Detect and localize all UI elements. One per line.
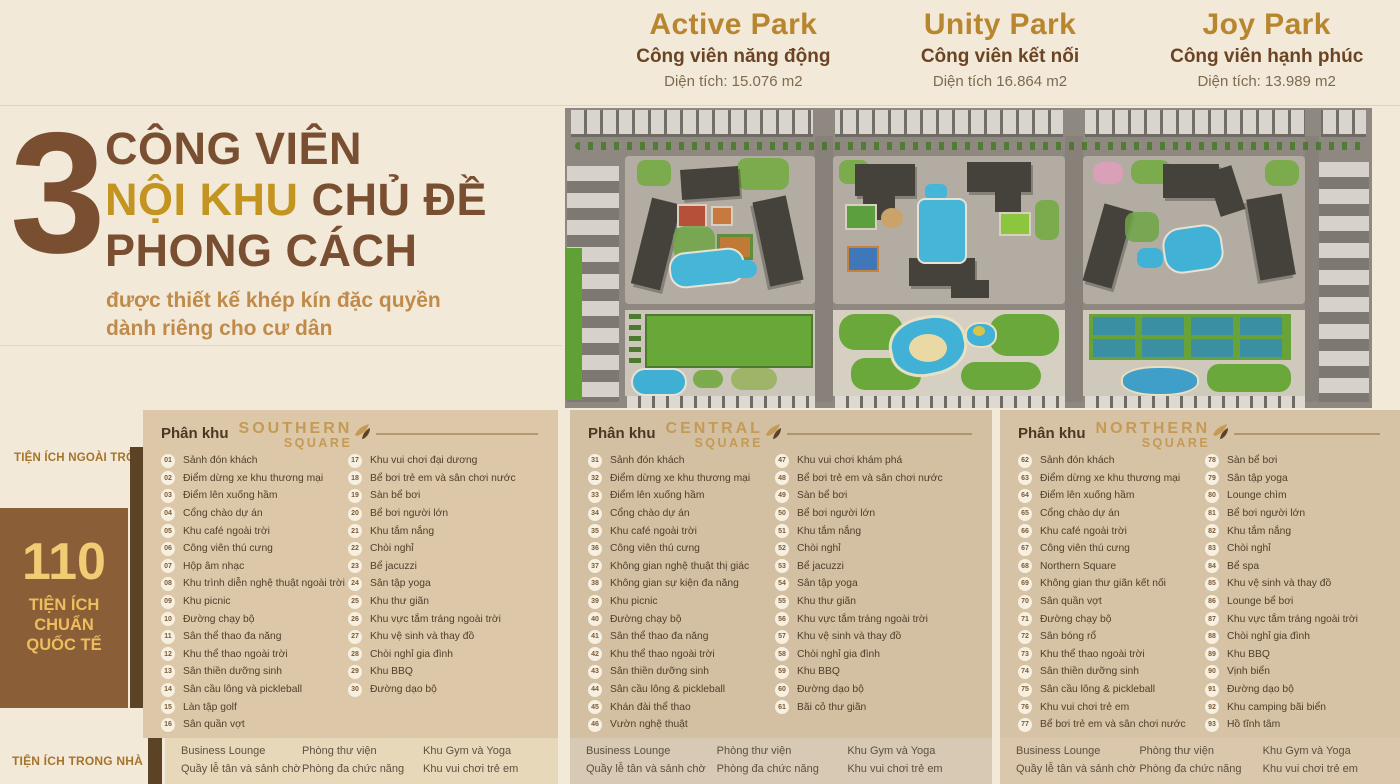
- item-label: Đường chạy bộ: [610, 614, 681, 625]
- list-item: 68Northern Square: [1018, 558, 1205, 576]
- item-number-badge: 33: [588, 489, 602, 503]
- item-number-badge: 71: [1018, 612, 1032, 626]
- list-item: 11Sân thể thao đa năng: [161, 628, 348, 646]
- item-label: Làn tập golf: [183, 702, 237, 713]
- list-item: 12Khu thể thao ngoài trời: [161, 646, 348, 664]
- indoor-item: Phòng thư viện: [302, 743, 423, 761]
- map-shape: [629, 314, 641, 364]
- item-number-badge: 39: [588, 595, 602, 609]
- item-label: Lounge chìm: [1227, 490, 1287, 501]
- item-label: Khu vệ sinh và thay đồ: [1227, 578, 1331, 589]
- list-item: 74Sân thiền dưỡng sinh: [1018, 663, 1205, 681]
- list-item: 73Khu thể thao ngoài trời: [1018, 646, 1205, 664]
- indoor-group-southern: Business LoungeQuầy lễ tân và sảnh chờPh…: [165, 738, 558, 784]
- map-shape: [693, 370, 723, 388]
- item-number-badge: 67: [1018, 542, 1032, 556]
- amenity-column-2: 47Khu vui chơi khám phá48Bể bơi trẻ em v…: [775, 452, 992, 734]
- item-label: Đường dạo bộ: [797, 684, 864, 695]
- item-label: Bãi cỏ thư giãn: [797, 702, 866, 713]
- item-number-badge: 82: [1205, 524, 1219, 538]
- item-number-badge: 12: [161, 647, 175, 661]
- list-item: 14Sân cầu lông và pickleball: [161, 681, 348, 699]
- map-shape: [815, 136, 833, 402]
- item-label: Chòi nghỉ gia đình: [797, 649, 880, 660]
- item-number-badge: 79: [1205, 471, 1219, 485]
- item-label: Khu vệ sinh và thay đồ: [370, 631, 474, 642]
- indoor-item: Phòng đa chức năng: [1139, 761, 1262, 779]
- indoor-group-northern: Business LoungeQuầy lễ tân và sảnh chờPh…: [1000, 738, 1400, 784]
- item-number-badge: 20: [348, 507, 362, 521]
- item-label: Khán đài thể thao: [610, 702, 691, 713]
- list-item: 51Khu tắm nắng: [775, 522, 992, 540]
- map-shape: [1093, 317, 1287, 335]
- item-label: Bể bơi trẻ em và sân chơi nước: [797, 473, 943, 484]
- list-item: 93Hồ tĩnh tâm: [1205, 716, 1400, 734]
- list-item: 76Khu vui chơi trẻ em: [1018, 698, 1205, 716]
- list-item: 60Đường dạo bộ: [775, 681, 992, 699]
- map-shape: [737, 158, 789, 190]
- list-item: 45Khán đài thể thao: [588, 698, 775, 716]
- park-name: Active Park: [600, 8, 867, 41]
- amenity-column-1: 62Sảnh đón khách63Điểm dừng xe khu thươn…: [1018, 452, 1205, 734]
- item-number-badge: 93: [1205, 718, 1219, 732]
- list-item: 83Chòi nghỉ: [1205, 540, 1400, 558]
- item-number-badge: 24: [348, 577, 362, 591]
- item-label: Lounge bể bơi: [1227, 596, 1293, 607]
- indoor-item: Quầy lễ tân và sảnh chờ: [181, 761, 302, 779]
- item-label: Sân quần vợt: [1040, 596, 1102, 607]
- item-label: Khu thể thao ngoài trời: [610, 649, 715, 660]
- item-number-badge: 48: [775, 471, 789, 485]
- list-item: 18Bể bơi trẻ em và sân chơi nước: [348, 470, 558, 488]
- item-number-badge: 01: [161, 454, 175, 468]
- list-item: 28Chòi nghỉ gia đình: [348, 646, 558, 664]
- section-label: Phân khu: [588, 425, 656, 442]
- list-item: 52Chòi nghỉ: [775, 540, 992, 558]
- item-label: Khu vui chơi khám phá: [797, 455, 902, 466]
- section-header: Phân khuSOUTHERNSQUARE: [143, 410, 558, 450]
- map-shape: [989, 314, 1059, 356]
- item-label: Khu BBQ: [797, 666, 840, 677]
- amenity-column-2: 17Khu vui chơi đại dương18Bể bơi trẻ em …: [348, 452, 558, 734]
- map-shape: [1121, 366, 1199, 396]
- list-item: 13Sân thiền dưỡng sinh: [161, 663, 348, 681]
- item-number-badge: 41: [588, 630, 602, 644]
- list-item: 56Khu vực tắm tráng ngoài trời: [775, 610, 992, 628]
- item-number-badge: 11: [161, 630, 175, 644]
- map-shape: [1093, 339, 1287, 357]
- item-number-badge: 15: [161, 700, 175, 714]
- indoor-column-3: Khu Gym và YogaKhu vui chơi trẻ em: [423, 743, 544, 778]
- map-shape: [680, 166, 740, 200]
- section-header: Phân khuCENTRALSQUARE: [570, 410, 992, 450]
- item-number-badge: 34: [588, 507, 602, 521]
- item-number-badge: 29: [348, 665, 362, 679]
- list-item: 05Khu café ngoài trời: [161, 522, 348, 540]
- item-number-badge: 90: [1205, 665, 1219, 679]
- map-shape: [881, 208, 903, 228]
- item-number-badge: 59: [775, 665, 789, 679]
- park-area: Diện tích: 15.076 m2: [600, 73, 867, 90]
- item-label: Chòi nghỉ: [370, 543, 414, 554]
- item-number-badge: 52: [775, 542, 789, 556]
- indoor-item: Phòng thư viện: [717, 743, 848, 761]
- map-shape: [1305, 108, 1321, 138]
- indoor-amenities-label: TIỆN ÍCH TRONG NHÀ: [12, 754, 143, 768]
- item-label: Sân quần vợt: [183, 719, 245, 730]
- square-logo-central: CENTRALSQUARE: [666, 420, 763, 450]
- item-label: Sân cầu lông & pickleball: [1040, 684, 1155, 695]
- item-number-badge: 85: [1205, 577, 1219, 591]
- list-item: 07Hộp âm nhạc: [161, 558, 348, 576]
- item-number-badge: 91: [1205, 683, 1219, 697]
- list-item: 50Bể bơi người lớn: [775, 505, 992, 523]
- item-label: Không gian nghệ thuật thị giác: [610, 561, 749, 572]
- item-number-badge: 77: [1018, 718, 1032, 732]
- list-item: 77Bể bơi trẻ em và sân chơi nước: [1018, 716, 1205, 734]
- item-label: Chòi nghỉ: [1227, 543, 1271, 554]
- item-number-badge: 69: [1018, 577, 1032, 591]
- item-label: Sân thiền dưỡng sinh: [1040, 666, 1139, 677]
- list-item: 03Điểm lên xuống hầm: [161, 487, 348, 505]
- item-number-badge: 84: [1205, 559, 1219, 573]
- map-shape: [731, 368, 777, 390]
- map-shape: [973, 326, 985, 336]
- item-label: Bể spa: [1227, 561, 1259, 572]
- item-label: Khu vui chơi đại dương: [370, 455, 477, 466]
- item-label: Khu tắm nắng: [370, 526, 434, 537]
- item-label: Sân cầu lông và pickleball: [183, 684, 302, 695]
- list-item: 25Khu thư giãn: [348, 593, 558, 611]
- item-number-badge: 65: [1018, 507, 1032, 521]
- indoor-item: Quầy lễ tân và sảnh chờ: [1016, 761, 1139, 779]
- item-label: Khu café ngoài trời: [1040, 526, 1127, 537]
- map-shape: [813, 108, 835, 138]
- park-area: Diện tích 16.864 m2: [867, 73, 1134, 90]
- list-item: 64Điểm lên xuống hầm: [1018, 487, 1205, 505]
- item-label: Vườn nghệ thuật: [610, 719, 688, 730]
- item-number-badge: 19: [348, 489, 362, 503]
- map-shape: [1207, 364, 1291, 392]
- item-number-badge: 40: [588, 612, 602, 626]
- list-item: 59Khu BBQ: [775, 663, 992, 681]
- item-label: Điểm dừng xe khu thương mại: [610, 473, 750, 484]
- park-header-1: Active ParkCông viên năng độngDiện tích:…: [600, 8, 867, 90]
- square-logo-line2: SQUARE: [284, 436, 352, 450]
- list-item: 37Không gian nghệ thuật thị giác: [588, 558, 775, 576]
- indoor-item: Khu Gym và Yoga: [847, 743, 978, 761]
- amenity-columns: 62Sảnh đón khách63Điểm dừng xe khu thươn…: [1018, 452, 1400, 734]
- map-shape: [1137, 248, 1163, 268]
- map-shape: [677, 204, 707, 228]
- item-number-badge: 75: [1018, 683, 1032, 697]
- park-name: Unity Park: [867, 8, 1134, 41]
- item-label: Cổng chào dự án: [1040, 508, 1120, 519]
- list-item: 22Chòi nghỉ: [348, 540, 558, 558]
- item-number-badge: 38: [588, 577, 602, 591]
- map-shape: [731, 260, 757, 278]
- list-item: 33Điểm lên xuống hầm: [588, 487, 775, 505]
- list-item: 71Đường chạy bộ: [1018, 610, 1205, 628]
- square-logo-leaf-icon: [1212, 424, 1229, 439]
- item-number-badge: 62: [1018, 454, 1032, 468]
- item-label: Khu vực tắm tráng ngoài trời: [370, 614, 501, 625]
- amenity-count-caption: TIỆN ÍCH CHUẨN QUỐC TẾ: [0, 596, 128, 655]
- square-logo-leaf-icon: [765, 424, 782, 439]
- hero-title-line1: CÔNG VIÊN: [105, 123, 362, 174]
- item-number-badge: 28: [348, 647, 362, 661]
- list-item: 80Lounge chìm: [1205, 487, 1400, 505]
- map-shape: [1319, 162, 1369, 402]
- item-number-badge: 32: [588, 471, 602, 485]
- item-number-badge: 46: [588, 718, 602, 732]
- item-label: Vịnh biển: [1227, 666, 1270, 677]
- item-label: Sân bóng rổ: [1040, 631, 1096, 642]
- map-shape: [1035, 200, 1059, 240]
- item-number-badge: 10: [161, 612, 175, 626]
- map-shape: [1125, 212, 1159, 242]
- item-label: Hộp âm nhạc: [183, 561, 244, 572]
- item-label: Bể jacuzzi: [370, 561, 417, 572]
- item-number-badge: 04: [161, 507, 175, 521]
- item-number-badge: 45: [588, 700, 602, 714]
- item-number-badge: 37: [588, 559, 602, 573]
- list-item: 17Khu vui chơi đại dương: [348, 452, 558, 470]
- amenity-column-1: 01Sảnh đón khách02Điểm dừng xe khu thươn…: [161, 452, 348, 734]
- item-label: Điểm lên xuống hầm: [183, 490, 277, 501]
- item-label: Khu thư giãn: [370, 596, 429, 607]
- list-item: 20Bể bơi người lớn: [348, 505, 558, 523]
- item-label: Khu trình diễn nghệ thuật ngoài trời: [183, 578, 345, 589]
- list-item: 08Khu trình diễn nghệ thuật ngoài trời: [161, 575, 348, 593]
- item-label: Khu tắm nắng: [797, 526, 861, 537]
- item-label: Hồ tĩnh tâm: [1227, 719, 1280, 730]
- list-item: 04Cổng chào dự án: [161, 505, 348, 523]
- outdoor-amenities-label: TIỆN ÍCH NGOÀI TRỜI: [14, 452, 139, 464]
- list-item: 35Khu café ngoài trời: [588, 522, 775, 540]
- square-logo-line2: SQUARE: [694, 436, 762, 450]
- indoor-item: Phòng đa chức năng: [717, 761, 848, 779]
- item-number-badge: 42: [588, 647, 602, 661]
- section-header-rule: [376, 433, 538, 435]
- item-number-badge: 43: [588, 665, 602, 679]
- map-shape: [565, 248, 582, 400]
- header-divider: [0, 105, 1400, 106]
- item-label: Sân thiền dưỡng sinh: [610, 666, 709, 677]
- item-label: Khu thể thao ngoài trời: [1040, 649, 1145, 660]
- item-label: Không gian sự kiện đa năng: [610, 578, 739, 589]
- accent-bar-lower: [148, 738, 162, 784]
- indoor-item: Business Lounge: [181, 743, 302, 761]
- list-item: 10Đường chạy bộ: [161, 610, 348, 628]
- item-label: Điểm lên xuống hầm: [1040, 490, 1134, 501]
- item-number-badge: 80: [1205, 489, 1219, 503]
- item-label: Khu BBQ: [370, 666, 413, 677]
- list-item: 63Điểm dừng xe khu thương mại: [1018, 470, 1205, 488]
- item-label: Sàn bể bơi: [1227, 455, 1277, 466]
- list-item: 24Sân tập yoga: [348, 575, 558, 593]
- indoor-column-2: Phòng thư việnPhòng đa chức năng: [717, 743, 848, 778]
- item-label: Bể bơi người lớn: [1227, 508, 1305, 519]
- list-item: 87Khu vực tắm tráng ngoài trời: [1205, 610, 1400, 628]
- map-shape: [645, 314, 813, 368]
- item-number-badge: 26: [348, 612, 362, 626]
- hero-title-line3: PHONG CÁCH: [105, 225, 418, 276]
- item-number-badge: 92: [1205, 700, 1219, 714]
- list-item: 23Bể jacuzzi: [348, 558, 558, 576]
- item-label: Sân tập yoga: [797, 578, 858, 589]
- list-item: 65Cổng chào dự án: [1018, 505, 1205, 523]
- indoor-item: Business Lounge: [586, 743, 717, 761]
- item-label: Khu BBQ: [1227, 649, 1270, 660]
- list-item: 53Bể jacuzzi: [775, 558, 992, 576]
- map-shape: [627, 396, 815, 408]
- item-label: Bể bơi người lớn: [797, 508, 875, 519]
- list-item: 47Khu vui chơi khám phá: [775, 452, 992, 470]
- hero-title-accent: NỘI KHU: [105, 174, 299, 225]
- hero-title: CÔNG VIÊN NỘI KHU CHỦ ĐỀ PHONG CÁCH: [105, 124, 487, 277]
- item-number-badge: 66: [1018, 524, 1032, 538]
- list-item: 48Bể bơi trẻ em và sân chơi nước: [775, 470, 992, 488]
- list-item: 43Sân thiền dưỡng sinh: [588, 663, 775, 681]
- list-item: 32Điểm dừng xe khu thương mại: [588, 470, 775, 488]
- list-item: 49Sàn bể bơi: [775, 487, 992, 505]
- park-subtitle: Công viên kết nối: [867, 46, 1134, 68]
- item-label: Sân thiền dưỡng sinh: [183, 666, 282, 677]
- list-item: 39Khu picnic: [588, 593, 775, 611]
- section-panel-northern: Phân khuNORTHERNSQUARE62Sảnh đón khách63…: [1000, 410, 1400, 738]
- section-header: Phân khuNORTHERNSQUARE: [1000, 410, 1400, 450]
- item-label: Khu tắm nắng: [1227, 526, 1291, 537]
- item-label: Sân tập yoga: [1227, 473, 1288, 484]
- item-number-badge: 47: [775, 454, 789, 468]
- list-item: 67Công viên thú cưng: [1018, 540, 1205, 558]
- item-label: Sân cầu lông & pickleball: [610, 684, 725, 695]
- list-item: 55Khu thư giãn: [775, 593, 992, 611]
- amenity-column-1: 31Sảnh đón khách32Điểm dừng xe khu thươn…: [588, 452, 775, 734]
- list-item: 21Khu tắm nắng: [348, 522, 558, 540]
- list-item: 27Khu vệ sinh và thay đồ: [348, 628, 558, 646]
- map-shape: [1085, 396, 1305, 408]
- item-number-badge: 56: [775, 612, 789, 626]
- item-number-badge: 50: [775, 507, 789, 521]
- list-item: 44Sân cầu lông & pickleball: [588, 681, 775, 699]
- hero-title-line2: CHỦ ĐỀ: [299, 174, 488, 225]
- amenity-columns: 01Sảnh đón khách02Điểm dừng xe khu thươn…: [161, 452, 558, 734]
- park-header-2: Unity ParkCông viên kết nốiDiện tích 16.…: [867, 8, 1134, 90]
- hero-number: 3: [10, 112, 106, 275]
- list-item: 16Sân quần vợt: [161, 716, 348, 734]
- page: Active ParkCông viên năng độngDiện tích:…: [0, 0, 1400, 784]
- item-number-badge: 76: [1018, 700, 1032, 714]
- item-number-badge: 03: [161, 489, 175, 503]
- item-number-badge: 23: [348, 559, 362, 573]
- square-logo-line2: SQUARE: [1142, 436, 1210, 450]
- item-number-badge: 86: [1205, 595, 1219, 609]
- map-shape: [951, 280, 989, 298]
- item-label: Northern Square: [1040, 561, 1116, 572]
- item-label: Chòi nghỉ gia đình: [1227, 631, 1310, 642]
- item-label: Khu vệ sinh và thay đồ: [797, 631, 901, 642]
- list-item: 54Sân tập yoga: [775, 575, 992, 593]
- list-item: 61Bãi cỏ thư giãn: [775, 698, 992, 716]
- item-number-badge: 81: [1205, 507, 1219, 521]
- item-label: Đường chạy bộ: [183, 614, 254, 625]
- list-item: 42Khu thể thao ngoài trời: [588, 646, 775, 664]
- list-item: 81Bể bơi người lớn: [1205, 505, 1400, 523]
- item-number-badge: 60: [775, 683, 789, 697]
- item-number-badge: 08: [161, 577, 175, 591]
- item-label: Khu vui chơi trẻ em: [1040, 702, 1129, 713]
- item-number-badge: 61: [775, 700, 789, 714]
- park-header-3: Joy ParkCông viên hạnh phúcDiện tích: 13…: [1133, 8, 1400, 90]
- item-label: Điểm dừng xe khu thương mại: [183, 473, 323, 484]
- list-item: 30Đường dạo bộ: [348, 681, 558, 699]
- amenity-count: 110: [0, 536, 128, 588]
- list-item: 92Khu camping bãi biển: [1205, 698, 1400, 716]
- indoor-column-3: Khu Gym và YogaKhu vui chơi trẻ em: [847, 743, 978, 778]
- item-label: Sảnh đón khách: [1040, 455, 1114, 466]
- item-label: Điểm lên xuống hầm: [610, 490, 704, 501]
- item-number-badge: 74: [1018, 665, 1032, 679]
- indoor-column-1: Business LoungeQuầy lễ tân và sảnh chờ: [181, 743, 302, 778]
- item-number-badge: 27: [348, 630, 362, 644]
- map-shape: [571, 110, 1366, 137]
- item-number-badge: 63: [1018, 471, 1032, 485]
- park-subtitle: Công viên hạnh phúc: [1133, 46, 1400, 68]
- hero-subtitle: được thiết kế khép kín đặc quyền dành ri…: [106, 287, 441, 343]
- item-label: Khu vực tắm tráng ngoài trời: [1227, 614, 1358, 625]
- list-item: 57Khu vệ sinh và thay đồ: [775, 628, 992, 646]
- masterplan-render: [565, 108, 1372, 408]
- map-shape: [1305, 136, 1319, 402]
- item-number-badge: 35: [588, 524, 602, 538]
- item-number-badge: 64: [1018, 489, 1032, 503]
- map-shape: [835, 396, 1065, 408]
- item-label: Khu thể thao ngoài trời: [183, 649, 288, 660]
- list-item: 84Bể spa: [1205, 558, 1400, 576]
- item-number-badge: 14: [161, 683, 175, 697]
- indoor-column-1: Business LoungeQuầy lễ tân và sảnh chờ: [586, 743, 717, 778]
- map-shape: [631, 368, 687, 396]
- item-label: Sàn bể bơi: [370, 490, 420, 501]
- list-item: 85Khu vệ sinh và thay đồ: [1205, 575, 1400, 593]
- item-label: Sân thể thao đa năng: [183, 631, 281, 642]
- section-label: Phân khu: [161, 425, 229, 442]
- accent-bar-upper: [130, 447, 143, 708]
- section-header-rule: [787, 433, 972, 435]
- map-shape: [855, 164, 915, 196]
- item-number-badge: 54: [775, 577, 789, 591]
- list-item: 01Sảnh đón khách: [161, 452, 348, 470]
- indoor-item: Business Lounge: [1016, 743, 1139, 761]
- item-label: Sảnh đón khách: [610, 455, 684, 466]
- item-label: Sân thể thao đa năng: [610, 631, 708, 642]
- map-shape: [1065, 136, 1083, 402]
- map-shape: [575, 142, 1365, 150]
- item-label: Khu picnic: [183, 596, 231, 607]
- item-label: Công viên thú cưng: [1040, 543, 1130, 554]
- item-number-badge: 57: [775, 630, 789, 644]
- map-shape: [967, 162, 1031, 192]
- list-item: 86Lounge bể bơi: [1205, 593, 1400, 611]
- item-label: Khu thư giãn: [797, 596, 856, 607]
- list-item: 91Đường dạo bộ: [1205, 681, 1400, 699]
- list-item: 09Khu picnic: [161, 593, 348, 611]
- list-item: 06Công viên thú cưng: [161, 540, 348, 558]
- indoor-item: Khu vui chơi trẻ em: [423, 761, 544, 779]
- map-shape: [711, 206, 733, 226]
